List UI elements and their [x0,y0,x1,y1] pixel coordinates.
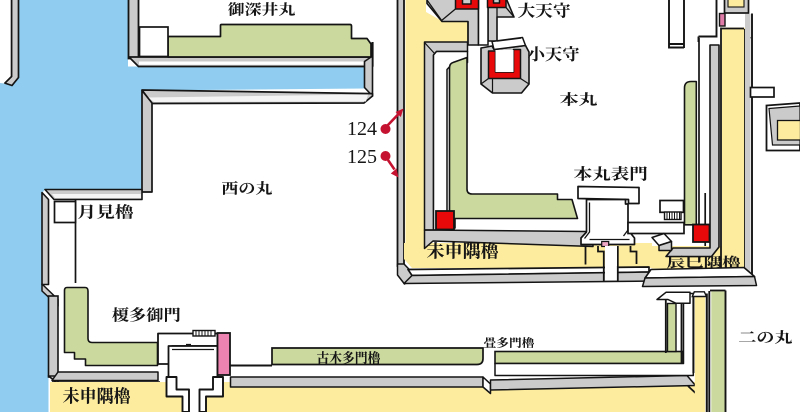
svg-text:124: 124 [347,118,377,140]
svg-text:125: 125 [347,146,377,168]
